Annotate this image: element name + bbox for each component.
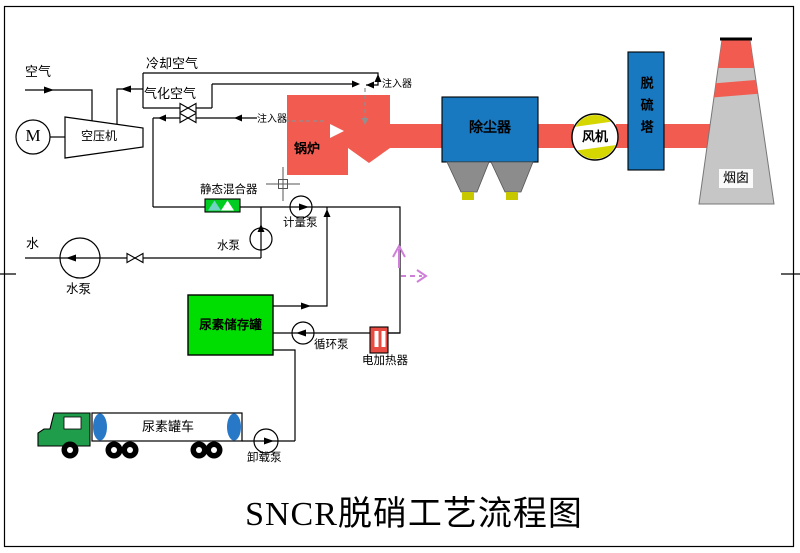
heater-slot	[382, 331, 386, 347]
flow-diagram: 空气 冷却空气 气化空气 M 空压机 注入器 注入器 锅炉 除尘器 风机 脱硫塔…	[0, 0, 800, 553]
water-pump-main-label: 水泵	[66, 283, 91, 296]
flow-arrow-icon	[44, 87, 54, 94]
valve-icon	[188, 104, 196, 113]
unloading-pump-label: 卸载泵	[247, 452, 282, 464]
injector-upper-label: 注入器	[382, 80, 412, 91]
chimney-band-top	[695, 40, 780, 68]
motor-label: M	[23, 127, 43, 145]
tank-cap-right	[227, 414, 241, 441]
tank-cap-left	[93, 414, 107, 441]
flow-arrow-icon	[324, 209, 331, 217]
static-mixer-label: 静态混合器	[200, 184, 258, 196]
valve-icon	[188, 114, 196, 123]
hopper-outlet-right	[506, 192, 518, 200]
flow-arrow-icon	[301, 303, 311, 310]
valve-icon	[127, 254, 135, 263]
flow-arrow-icon	[352, 81, 360, 88]
fan-label: 风机	[572, 130, 618, 144]
dust-collector	[442, 97, 538, 200]
water-label: 水	[26, 237, 39, 251]
compressor-label: 空压机	[81, 130, 117, 143]
chimney-label: 烟囱	[719, 171, 753, 185]
cad-grip-arrows-artifact	[393, 246, 426, 282]
flow-arrow-icon	[234, 115, 242, 122]
boiler-label: 锅炉	[294, 142, 320, 156]
circulation-pump-label: 循环泵	[314, 339, 349, 351]
gasification-air-label: 气化空气	[144, 87, 196, 101]
valve-icon	[180, 104, 188, 113]
flow-arrow-icon	[375, 74, 382, 82]
injector-left-label: 注入器	[257, 115, 287, 126]
hopper-outlet-left	[462, 192, 474, 200]
cooling-air-label: 冷却空气	[146, 57, 198, 71]
truck-window	[64, 417, 81, 429]
valve-icon	[135, 254, 143, 263]
air-label: 空气	[25, 65, 51, 79]
dust-collector-label: 除尘器	[442, 122, 538, 137]
static-mixer	[205, 199, 240, 212]
flow-arrow-icon	[158, 115, 166, 122]
flow-arrow-icon	[366, 82, 374, 89]
urea-tank-label: 尿素储存罐	[188, 319, 273, 332]
electric-heater-label: 电加热器	[362, 355, 408, 367]
heater-slot	[375, 331, 379, 347]
hopper-right	[491, 162, 533, 192]
urea-truck-label: 尿素罐车	[108, 420, 228, 434]
metering-pump-label: 计量泵	[283, 217, 318, 229]
flow-arrow-icon	[121, 86, 131, 93]
hopper-left	[447, 162, 489, 192]
valve-icon	[180, 114, 188, 123]
water-pump-small-label: 水泵	[217, 240, 240, 252]
diagram-title: SNCR脱硝工艺流程图	[245, 486, 583, 535]
tower-label: 脱硫塔	[639, 76, 653, 142]
